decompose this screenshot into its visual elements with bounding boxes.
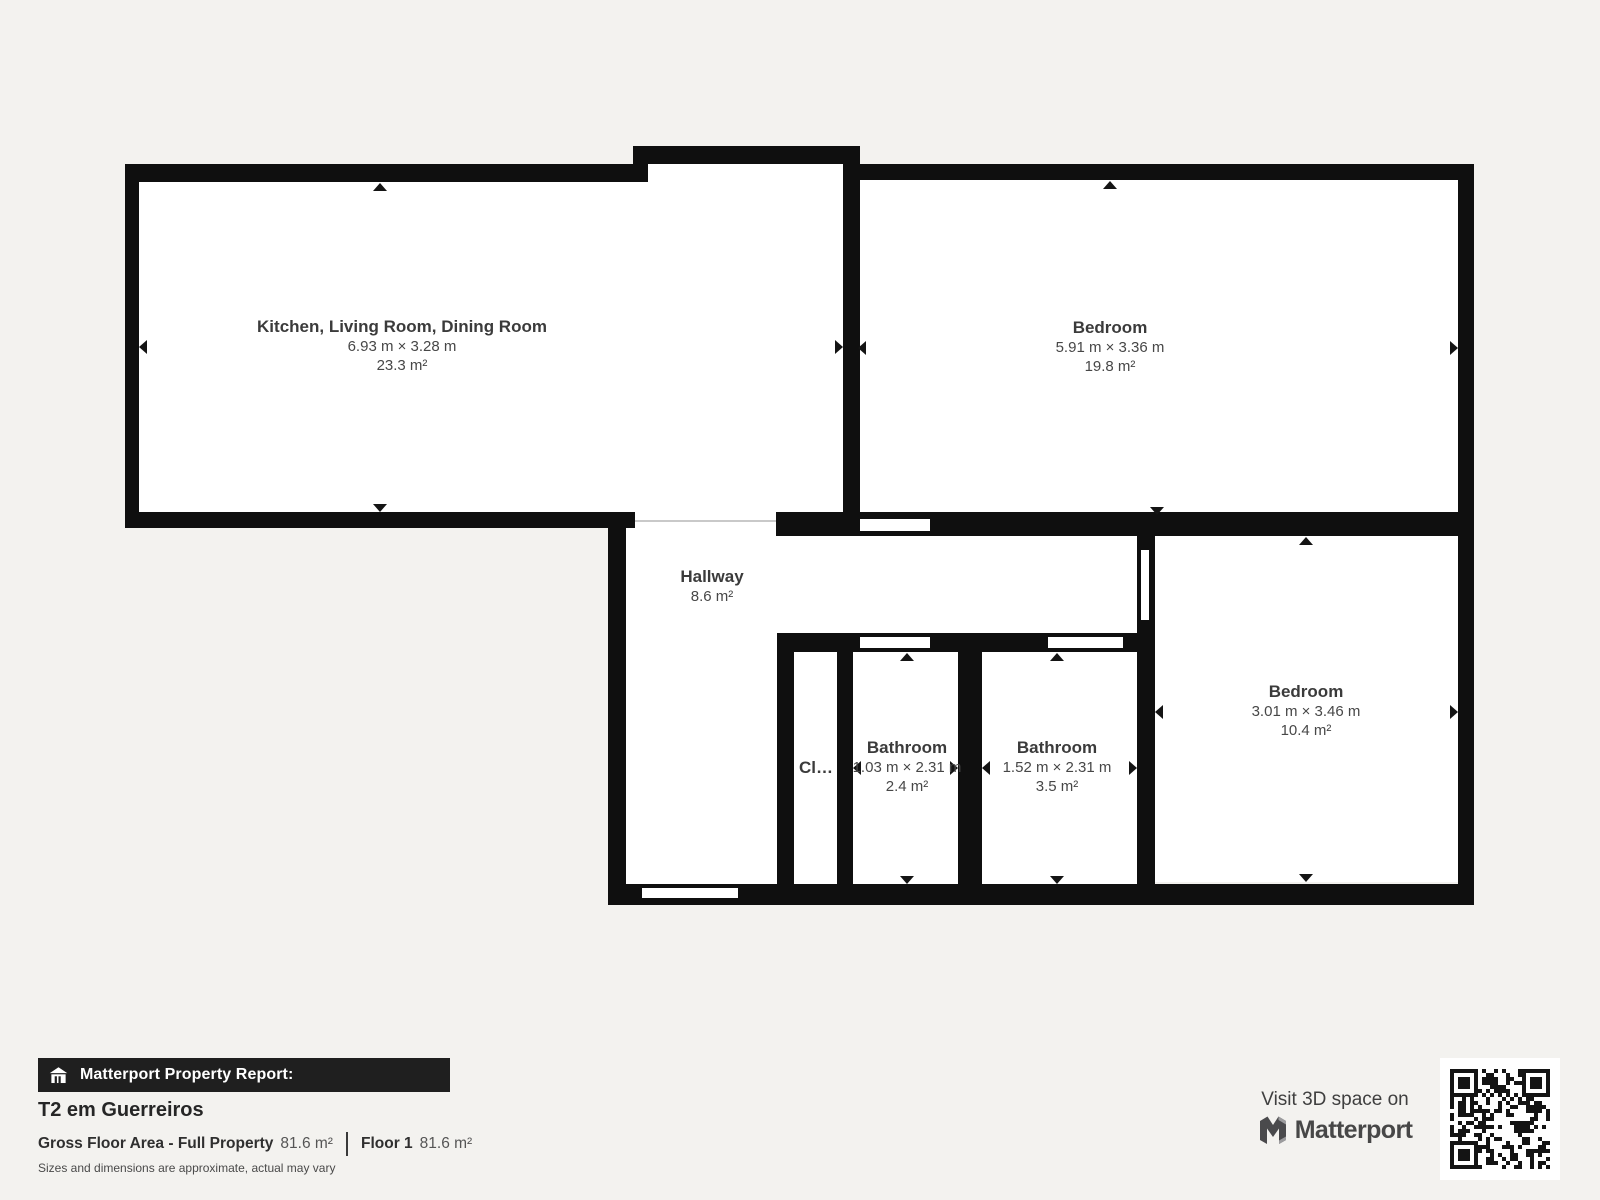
wall <box>777 652 794 884</box>
door-opening-bathroom-1 <box>860 637 930 648</box>
measure-arrow <box>900 876 914 884</box>
measure-arrow <box>1155 705 1163 719</box>
measure-arrow <box>373 183 387 191</box>
wall <box>608 512 626 905</box>
room-area: 8.6 m² <box>680 587 743 606</box>
room-area: 19.8 m² <box>1056 357 1165 376</box>
measure-arrow <box>858 341 866 355</box>
wall <box>125 164 648 182</box>
divider <box>346 1132 348 1156</box>
report-label: Matterport Property Report: <box>80 1066 293 1084</box>
gross-area-value: 81.6 m² <box>280 1135 333 1153</box>
measure-arrow <box>1299 537 1313 545</box>
measure-arrow <box>1103 181 1117 189</box>
measure-arrow <box>1050 653 1064 661</box>
matterport-logo: Matterport <box>1258 1114 1413 1147</box>
measure-arrow <box>1129 761 1137 775</box>
qr-code[interactable] <box>1440 1058 1560 1180</box>
wall <box>125 164 139 528</box>
wall <box>125 512 635 528</box>
room-area: 3.5 m² <box>1003 777 1112 796</box>
room-label-bedroom-2: Bedroom 3.01 m × 3.46 m 10.4 m² <box>1252 682 1361 740</box>
room-area: 2.4 m² <box>853 777 962 796</box>
room-area: 10.4 m² <box>1252 721 1361 740</box>
measure-arrow <box>1050 876 1064 884</box>
room-dims: 1.52 m × 2.31 m <box>1003 758 1112 777</box>
measure-arrow <box>139 340 147 354</box>
room-name: Bedroom <box>1056 318 1165 338</box>
door-opening-bedroom-2 <box>1141 550 1149 620</box>
room-name: Bathroom <box>853 738 962 758</box>
wall <box>633 146 860 164</box>
room-area: 23.3 m² <box>257 356 547 375</box>
measure-arrow <box>1150 507 1164 515</box>
room-label-hallway: Hallway 8.6 m² <box>680 567 743 606</box>
measure-arrow <box>900 653 914 661</box>
open-passage-line <box>635 520 776 522</box>
room-label-bathroom-1: Bathroom 1.03 m × 2.31 m 2.4 m² <box>853 738 962 796</box>
house-icon <box>49 1066 68 1085</box>
room-name: Bathroom <box>1003 738 1112 758</box>
door-opening-bedroom-1 <box>860 519 930 531</box>
measure-arrow <box>835 340 843 354</box>
disclaimer-text: Sizes and dimensions are approximate, ac… <box>38 1161 335 1175</box>
room-name: Bedroom <box>1252 682 1361 702</box>
room-label-bedroom-1: Bedroom 5.91 m × 3.36 m 19.8 m² <box>1056 318 1165 376</box>
report-header-bar: Matterport Property Report: <box>38 1058 450 1092</box>
matterport-logo-mark-icon <box>1258 1114 1288 1147</box>
room-fill-kitchen-notch <box>648 164 843 184</box>
door-opening-bathroom-2 <box>1048 637 1123 648</box>
room-label-kitchen: Kitchen, Living Room, Dining Room 6.93 m… <box>257 317 547 375</box>
measure-arrow <box>1450 341 1458 355</box>
visit-3d-link[interactable]: Visit 3D space on Matterport <box>1245 1090 1425 1147</box>
wall <box>837 652 853 884</box>
floor-value: 81.6 m² <box>420 1135 473 1153</box>
room-name: Hallway <box>680 567 743 587</box>
room-dims: 5.91 m × 3.36 m <box>1056 338 1165 357</box>
room-label-closet: Cl… <box>799 758 833 778</box>
measure-arrow <box>982 761 990 775</box>
visit-text: Visit 3D space on <box>1261 1090 1409 1110</box>
room-dims: 6.93 m × 3.28 m <box>257 337 547 356</box>
measure-arrow <box>1450 705 1458 719</box>
gross-area-label: Gross Floor Area - Full Property <box>38 1135 273 1153</box>
measure-arrow <box>373 504 387 512</box>
room-dims: 3.01 m × 3.46 m <box>1252 702 1361 721</box>
room-name: Cl… <box>799 758 833 778</box>
floor-label: Floor 1 <box>361 1135 413 1153</box>
matterport-wordmark: Matterport <box>1295 1116 1413 1145</box>
measure-arrow <box>1299 874 1313 882</box>
property-name: T2 em Guerreiros <box>38 1099 204 1122</box>
room-label-bathroom-2: Bathroom 1.52 m × 2.31 m 3.5 m² <box>1003 738 1112 796</box>
door-opening-entry <box>642 888 738 898</box>
wall <box>843 164 1474 180</box>
room-dims: 1.03 m × 2.31 m <box>853 758 962 777</box>
floor-plan-page: Kitchen, Living Room, Dining Room 6.93 m… <box>0 0 1600 1200</box>
wall <box>958 652 982 884</box>
room-name: Kitchen, Living Room, Dining Room <box>257 317 547 337</box>
area-summary: Gross Floor Area - Full Property 81.6 m²… <box>38 1132 472 1156</box>
